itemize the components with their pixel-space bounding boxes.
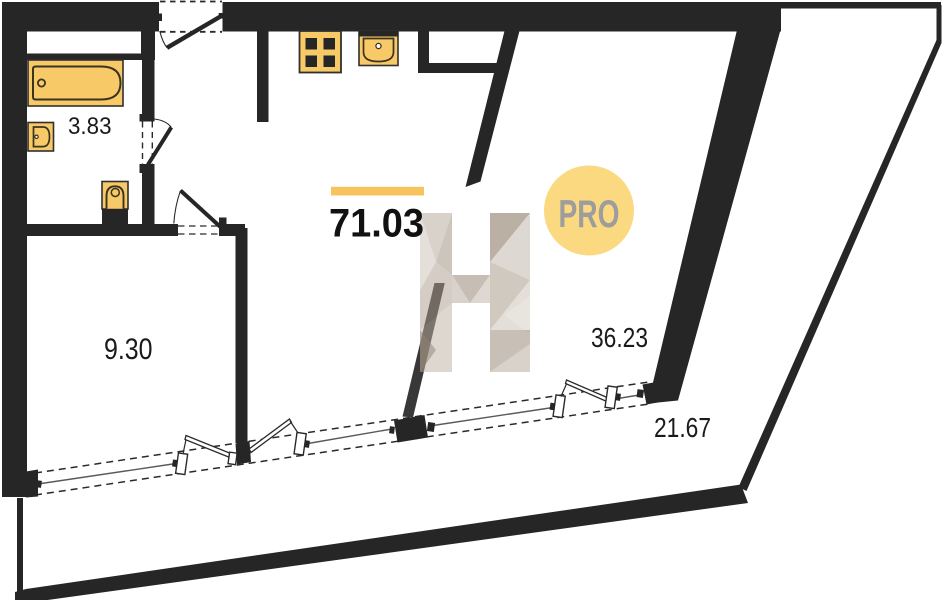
svg-text:21.67: 21.67 <box>654 412 711 443</box>
svg-text:PRO: PRO <box>559 193 620 236</box>
svg-text:9.30: 9.30 <box>104 333 153 366</box>
svg-text:3.83: 3.83 <box>68 113 112 140</box>
svg-text:36.23: 36.23 <box>591 322 648 353</box>
svg-text:71.03: 71.03 <box>329 202 424 246</box>
